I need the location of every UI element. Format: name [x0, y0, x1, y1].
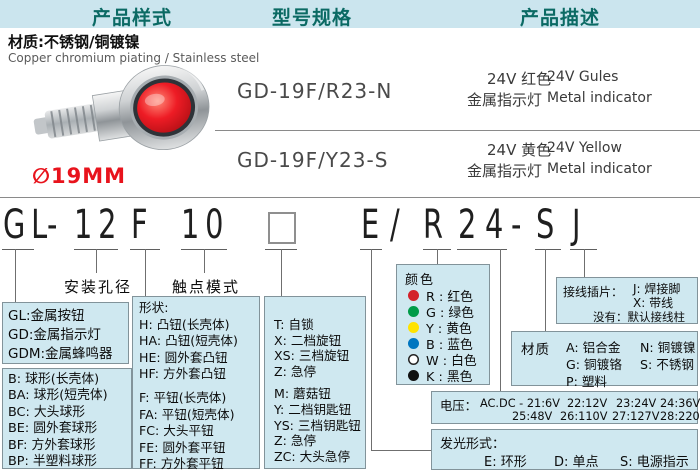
box-shape-codes: 形状: H: 凸钮(长壳体) HA: 凸钮(短壳体) HE: 圆外套凸钮 HF:…: [132, 296, 260, 469]
list-item: FE: 圆外套平钮: [139, 440, 259, 457]
box-title: 电压：: [440, 396, 477, 414]
box-title: 接线插片：: [563, 283, 623, 300]
box-voltage: 电压： AC.DC - 21:6V 22:12V 23:24V 24:36V 2…: [431, 391, 698, 424]
product-photo-indicator-light: [20, 64, 225, 164]
list-item: GDM:金属蜂鸣器: [8, 345, 128, 364]
list-item: M: 蘑菇钮: [274, 386, 365, 402]
blue-dot-icon: [408, 338, 419, 349]
connector-contact: [204, 249, 205, 273]
connector-terminal: [584, 249, 585, 277]
list-item: Z: 急停: [274, 433, 365, 449]
code-seg-material: S: [536, 205, 554, 245]
voltage-item: 24:36V: [660, 397, 700, 410]
box-product-type: GL:金属按钮 GD:金属指示灯 GDM:金属蜂鸣器: [2, 302, 129, 364]
model-1-desc-cn2: 金属指示灯: [467, 89, 542, 110]
model-2-desc-en1: 24V Yellow: [547, 140, 622, 156]
list-item: BP: 半塑料球形: [8, 454, 131, 470]
model-1-desc-en2: Metal indicator: [547, 90, 652, 106]
list-item: T: 自锁: [274, 317, 365, 333]
list-item: GL:金属按钮: [8, 307, 128, 326]
box-title: 形状:: [139, 300, 259, 317]
code-seg-slash: /: [390, 205, 400, 245]
color-row: K : 黑色: [408, 367, 472, 383]
list-item: B: 球形(长壳体): [8, 372, 131, 388]
box-title: 发光形式：: [440, 433, 505, 452]
connector-hole: [96, 249, 97, 273]
voltage-item: 23:24V: [616, 397, 656, 410]
voltage-item: 27:127V: [612, 410, 659, 423]
code-seg-square-placeholder: [268, 212, 296, 244]
box-wiring-terminal: 接线插片： J: 焊接脚 X: 带线 没有：默认接线柱: [556, 277, 698, 324]
voltage-item: 25:48V: [512, 410, 552, 423]
connector-color: [437, 249, 438, 264]
code-seg-dash1: -: [47, 205, 57, 245]
list-item: BF: 方外套球形: [8, 438, 131, 454]
voltage-item: AC.DC - 21:6V: [480, 397, 560, 410]
list-item: 没有：默认接线柱: [593, 309, 685, 325]
list-item: S: 电源指示: [620, 451, 689, 470]
product-spec-sheet: 产品样式 型号规格 产品描述 材质:不锈钢/铜镀镍 Copper chromiu…: [0, 0, 700, 472]
box-title: 材质: [521, 338, 550, 358]
list-item: E: 环形: [484, 451, 527, 470]
voltage-item: 22:12V: [567, 397, 607, 410]
code-seg-prefix: GL: [3, 205, 53, 245]
list-item: XS: 三档旋钮: [274, 348, 365, 364]
connector-light-v: [371, 249, 372, 450]
code-seg-terminal: J: [572, 205, 580, 245]
connector-light-h: [371, 450, 432, 451]
label-mounting-hole: 安装孔径: [64, 276, 132, 297]
list-item: YS: 三档钥匙钮: [274, 418, 365, 434]
material-label-cn: 材质:不锈钢/铜镀镍: [8, 31, 139, 52]
underline-prefix: [2, 249, 34, 250]
box-contact-modes: T: 自锁 X: 二档旋钮 XS: 三档旋钮 Z: 急停 M: 蘑菇钮 Y: 二…: [264, 296, 366, 469]
box-ball-shapes: B: 球形(长壳体) BA: 球形(短壳体) BC: 大头球形 BE: 圆外套球…: [2, 368, 132, 469]
diameter-label: ∅19MM: [32, 164, 126, 188]
box-material: 材质 A: 铝合金 N: 铜镀镍 G: 铜镀铬 S: 不锈钢 P: 塑料: [511, 331, 698, 386]
code-seg-color: R: [423, 205, 443, 245]
model-2-desc-cn2: 金属指示灯: [467, 160, 542, 181]
connector-material: [545, 249, 546, 331]
tab-product-desc: 产品描述: [520, 3, 600, 30]
label-contact-mode: 触点模式: [172, 276, 240, 297]
list-item: BE: 圆外套球形: [8, 421, 131, 437]
red-dot-icon: [408, 290, 419, 301]
list-item: Y: 二档钥匙钮: [274, 402, 365, 418]
green-dot-icon: [408, 306, 419, 317]
model-2-desc-en2: Metal indicator: [547, 161, 652, 177]
list-item: ZC: 大头急停: [274, 449, 365, 465]
section-divider: [0, 197, 700, 198]
list-item: FC: 大头平钮: [139, 423, 259, 440]
code-seg-light: E: [361, 205, 379, 245]
row-divider: [215, 130, 700, 131]
code-seg-volt: 24: [458, 205, 512, 245]
connector-square: [281, 249, 282, 296]
list-item: S: 不锈钢: [640, 354, 694, 373]
white-dot-icon: [408, 354, 419, 365]
material-label-en: Copper chromium piating / Stainless stee…: [8, 51, 259, 65]
tab-model-spec: 型号规格: [272, 3, 352, 30]
list-item: P: 塑料: [566, 371, 607, 390]
list-item: D: 单点: [554, 451, 599, 470]
model-code-1: GD-19F/R23-N: [237, 79, 392, 103]
model-1-desc-en1: 24V Gules: [547, 69, 618, 85]
list-item: BA: 球形(短壳体): [8, 388, 131, 404]
list-item: F: 平钮(长壳体): [139, 390, 259, 407]
black-dot-icon: [408, 370, 419, 381]
list-item: HE: 圆外套凸钮: [139, 350, 259, 367]
code-seg-dash2: -: [511, 205, 521, 245]
model-1-desc-cn1: 24V 红色: [487, 68, 551, 89]
tab-product-style: 产品样式: [92, 3, 172, 30]
list-item: FF: 方外套平钮: [139, 456, 259, 472]
list-item: GD:金属指示灯: [8, 326, 128, 345]
connector-shape: [145, 249, 146, 296]
connector-prefix: [15, 249, 16, 302]
connector-volt: [500, 249, 501, 391]
code-seg-hole: 12: [74, 205, 122, 245]
box-light-form: 发光形式： E: 环形 D: 单点 S: 电源指示: [431, 429, 698, 470]
yellow-dot-icon: [408, 322, 419, 333]
list-item: FA: 平钮(短壳体): [139, 407, 259, 424]
underline-material: [535, 249, 561, 250]
list-item: HA: 凸钮(短壳体): [139, 333, 259, 350]
list-item: H: 凸钮(长壳体): [139, 317, 259, 334]
code-seg-shape: F: [131, 205, 148, 245]
color-label: K : 黑色: [426, 366, 472, 385]
model-code-2: GD-19F/Y23-S: [237, 148, 388, 172]
voltage-item: 28:220V: [660, 410, 700, 423]
voltage-item: 26:110V: [560, 410, 607, 423]
list-item: Z: 急停: [274, 364, 365, 380]
list-item: X: 二档旋钮: [274, 333, 365, 349]
code-seg-contact: 10: [181, 205, 229, 245]
model-2-desc-cn1: 24V 黄色: [487, 139, 551, 160]
list-item: BC: 大头球形: [8, 405, 131, 421]
list-item: HF: 方外套凸钮: [139, 366, 259, 383]
box-colors: 颜色 R : 红色 G : 绿色 Y : 黄色 B : 蓝色 W : 白色 K …: [396, 264, 490, 385]
